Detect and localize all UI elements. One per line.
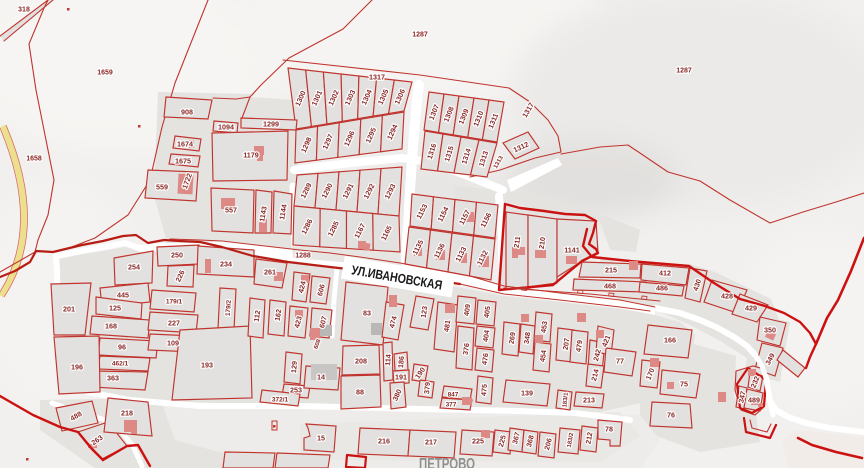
svg-text:162: 162: [273, 308, 284, 321]
svg-text:363: 363: [107, 374, 119, 383]
svg-text:75: 75: [680, 380, 688, 389]
svg-text:250: 250: [171, 251, 183, 260]
svg-text:211: 211: [512, 236, 523, 249]
svg-text:96: 96: [118, 343, 126, 352]
svg-text:201: 201: [63, 305, 75, 314]
svg-text:1094: 1094: [218, 123, 234, 132]
svg-text:88: 88: [356, 388, 364, 397]
svg-text:1287: 1287: [412, 32, 428, 39]
svg-text:1141: 1141: [564, 246, 580, 255]
svg-text:405: 405: [482, 305, 493, 318]
svg-text:269: 269: [507, 331, 518, 344]
svg-text:78: 78: [605, 425, 613, 434]
svg-text:83: 83: [363, 309, 371, 318]
svg-text:ПЕТРОВО: ПЕТРОВО: [419, 456, 475, 468]
svg-text:1659: 1659: [97, 70, 113, 77]
svg-text:210: 210: [537, 236, 548, 249]
svg-text:76: 76: [667, 411, 675, 420]
svg-text:1675: 1675: [175, 157, 191, 166]
svg-text:559: 559: [156, 183, 168, 192]
svg-text:139: 139: [521, 389, 533, 398]
svg-text:481: 481: [442, 319, 453, 332]
svg-text:216: 216: [378, 437, 390, 446]
svg-text:227: 227: [168, 319, 180, 328]
svg-text:908: 908: [181, 108, 193, 117]
svg-text:253: 253: [290, 386, 302, 395]
svg-text:429: 429: [745, 304, 757, 313]
svg-text:217: 217: [425, 438, 437, 447]
svg-text:404: 404: [481, 329, 492, 342]
svg-text:350: 350: [764, 326, 776, 335]
svg-text:462/1: 462/1: [112, 360, 129, 367]
svg-text:377: 377: [446, 401, 457, 408]
svg-text:114: 114: [383, 354, 393, 366]
svg-text:557: 557: [225, 206, 237, 215]
svg-text:318: 318: [18, 6, 30, 13]
svg-text:372/1: 372/1: [272, 396, 289, 403]
svg-text:409: 409: [462, 303, 473, 316]
svg-text:234: 234: [220, 260, 232, 269]
svg-text:125: 125: [109, 304, 121, 313]
svg-text:1179: 1179: [243, 151, 259, 160]
svg-text:14: 14: [317, 373, 325, 382]
svg-text:193: 193: [201, 361, 213, 370]
svg-text:475: 475: [479, 384, 489, 397]
svg-text:179/2: 179/2: [225, 299, 233, 316]
svg-text:1287: 1287: [676, 68, 692, 75]
svg-text:445: 445: [117, 291, 129, 300]
svg-text:847: 847: [448, 391, 459, 398]
svg-text:225: 225: [472, 437, 484, 446]
svg-text:376: 376: [461, 342, 472, 355]
svg-text:196: 196: [71, 363, 83, 372]
svg-text:261: 261: [264, 268, 276, 277]
svg-text:77: 77: [616, 357, 624, 366]
svg-text:468: 468: [604, 282, 616, 291]
svg-text:1288: 1288: [295, 252, 311, 259]
svg-text:123: 123: [419, 305, 430, 318]
svg-text:208: 208: [355, 357, 367, 366]
svg-text:479: 479: [574, 339, 585, 352]
svg-text:215: 215: [605, 266, 617, 275]
svg-text:191: 191: [395, 373, 407, 382]
svg-text:1674: 1674: [177, 140, 193, 149]
svg-text:109: 109: [167, 339, 179, 348]
svg-text:186: 186: [396, 356, 406, 369]
svg-text:1299: 1299: [263, 120, 279, 129]
svg-text:412: 412: [659, 269, 671, 278]
svg-text:454: 454: [538, 349, 549, 362]
svg-text:15: 15: [317, 434, 325, 443]
svg-text:348: 348: [522, 331, 533, 344]
svg-text:179/1: 179/1: [166, 298, 183, 305]
svg-text:166: 166: [664, 336, 676, 345]
svg-text:489: 489: [748, 396, 760, 405]
svg-text:1658: 1658: [26, 155, 42, 162]
svg-text:207: 207: [561, 337, 572, 350]
svg-text:129: 129: [289, 361, 299, 374]
svg-text:379: 379: [422, 382, 432, 395]
svg-text:1317: 1317: [369, 73, 385, 82]
svg-text:476: 476: [480, 352, 491, 365]
svg-text:168: 168: [105, 322, 117, 331]
svg-text:486: 486: [656, 284, 668, 293]
svg-text:112: 112: [252, 310, 263, 323]
svg-text:453: 453: [539, 320, 550, 333]
svg-text:218: 218: [121, 409, 133, 418]
svg-text:213: 213: [583, 396, 595, 405]
svg-text:254: 254: [128, 263, 140, 272]
svg-text:428: 428: [721, 292, 733, 301]
